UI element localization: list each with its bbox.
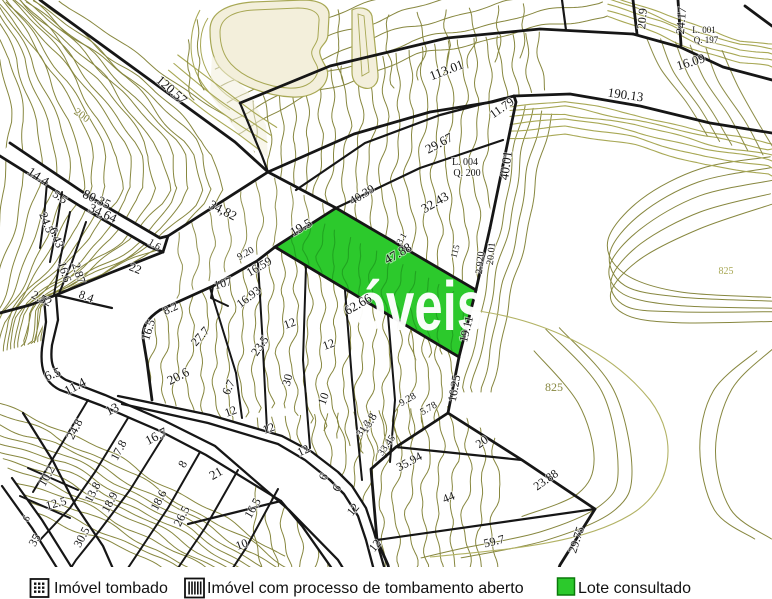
svg-text:2.920: 2.920 — [474, 251, 487, 275]
svg-text:L. 001: L. 001 — [692, 25, 716, 35]
svg-text:Imóvel com processo de tombame: Imóvel com processo de tombamento aberto — [207, 580, 524, 597]
svg-text:L. 004: L. 004 — [452, 157, 478, 168]
svg-text:Q. 200: Q. 200 — [453, 168, 480, 179]
svg-text:825: 825 — [545, 380, 563, 394]
svg-text:Lote consultado: Lote consultado — [578, 580, 691, 597]
svg-text:24.17: 24.17 — [673, 7, 689, 35]
svg-text:Q. 197: Q. 197 — [694, 35, 719, 45]
svg-text:20.9: 20.9 — [634, 8, 650, 30]
svg-text:825: 825 — [719, 266, 734, 277]
svg-text:Imóvel tombado: Imóvel tombado — [54, 580, 168, 597]
